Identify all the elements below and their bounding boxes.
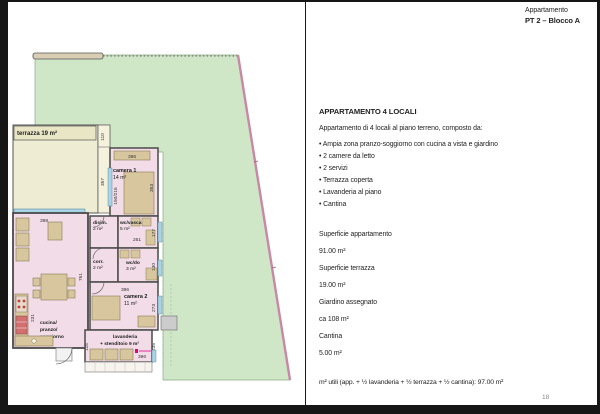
apartment-title: APPARTAMENTO 4 LOCALI bbox=[319, 107, 416, 116]
camera2-label: camera 2 bbox=[124, 294, 147, 300]
spec-item: Cantina 5.00 m² bbox=[319, 328, 392, 362]
stove-icon bbox=[16, 296, 27, 312]
spec-label: Superficie appartamento bbox=[319, 226, 392, 243]
lavanderia-window bbox=[152, 350, 156, 362]
document-header: Appartamento PT 2 – Blocco A bbox=[525, 6, 580, 26]
useful-area-footnote: m² utili (app. + ½ lavanderia + ½ terraz… bbox=[319, 379, 503, 386]
spec-label: Cantina bbox=[319, 328, 392, 345]
terrazza-label: terrazza 19 m² bbox=[17, 130, 57, 137]
dim-396-camera1: 396 bbox=[128, 154, 136, 160]
wcvasca-area: 5 m² bbox=[120, 226, 130, 232]
svg-text:pranzo/: pranzo/ bbox=[40, 327, 58, 333]
fridge-icon bbox=[16, 316, 27, 334]
sink-icon bbox=[32, 339, 36, 343]
exterior-unit-box bbox=[161, 316, 177, 330]
dim-273: 273 bbox=[151, 304, 157, 312]
dim-261: 261 bbox=[133, 237, 141, 243]
wcvasca-window bbox=[158, 222, 162, 242]
dim-110: 110 bbox=[100, 133, 106, 141]
spec-value: ca 108 m² bbox=[319, 311, 392, 328]
surface-specs: Superficie appartamento 91.00 m² Superfi… bbox=[319, 226, 392, 362]
spec-label: Giardino assegnato bbox=[319, 294, 392, 311]
spec-value: 19.00 m² bbox=[319, 277, 392, 294]
list-item: 2 servizi bbox=[319, 163, 498, 175]
list-item: Terrazza coperta bbox=[319, 175, 498, 187]
dim-231: 231 bbox=[30, 314, 36, 322]
camera1-window bbox=[108, 168, 112, 206]
apartment-intro: Appartamento di 4 locali al piano terren… bbox=[319, 125, 482, 132]
page-number: 18 bbox=[542, 394, 549, 401]
document-page: terrazza 19 m² 110 357 398 761 231 cucin… bbox=[8, 2, 597, 405]
washing-machines bbox=[90, 349, 133, 360]
list-item: Cantina bbox=[319, 199, 498, 211]
dim-177: 177 bbox=[151, 229, 157, 237]
disim-label: disim. bbox=[93, 220, 108, 226]
spec-label: Superficie terrazza bbox=[319, 260, 392, 277]
camera1-area: 14 m² bbox=[113, 175, 127, 181]
dim-357: 357 bbox=[100, 178, 106, 186]
spec-item: Giardino assegnato ca 108 m² bbox=[319, 294, 392, 328]
dim-130: 130 bbox=[151, 263, 157, 271]
feature-list: Ampia zona pranzo-soggiorno con cucina a… bbox=[319, 139, 498, 211]
page-root: { "header": { "label": "Appartamento", "… bbox=[0, 0, 600, 414]
header-label: Appartamento bbox=[525, 6, 580, 16]
spec-value: 91.00 m² bbox=[319, 243, 392, 260]
dim-115: 115 bbox=[84, 343, 90, 351]
dim-396-lavanderia: 396 bbox=[138, 354, 146, 360]
dim-396-camera2: 396 bbox=[121, 287, 129, 293]
list-item: Lavanderia al piano bbox=[319, 187, 498, 199]
list-item: 2 camere da letto bbox=[319, 151, 498, 163]
dim-398: 398 bbox=[40, 218, 48, 224]
top-wall bbox=[33, 53, 103, 59]
list-item: Ampia zona pranzo-soggiorno con cucina a… bbox=[319, 139, 498, 151]
room-corr bbox=[90, 248, 118, 282]
camera2-window bbox=[158, 296, 162, 314]
corr-label: corr. bbox=[93, 259, 104, 265]
unit-code: PT 2 – Blocco A bbox=[525, 16, 580, 26]
camera2-area: 11 m² bbox=[124, 301, 137, 307]
entry-step bbox=[56, 348, 72, 361]
dim-353: 353 bbox=[149, 184, 155, 192]
dim-235: 235 bbox=[151, 343, 157, 351]
spec-value: 5.00 m² bbox=[319, 345, 392, 362]
description-panel: Appartamento PT 2 – Blocco A APPARTAMENT… bbox=[306, 2, 597, 405]
spec-item: Superficie appartamento 91.00 m² bbox=[319, 226, 392, 260]
dim-761: 761 bbox=[78, 273, 84, 281]
wcdo-area: 3 m² bbox=[126, 266, 136, 272]
wcdo-label: wc/do bbox=[125, 260, 140, 266]
wcdo-window bbox=[158, 260, 162, 276]
lavanderia-label: lavanderia bbox=[113, 334, 137, 340]
dim-150-216: 150/216 bbox=[113, 187, 119, 205]
lavanderia-area: + stenditoio 9 m² bbox=[100, 341, 139, 347]
svg-text:cucina/: cucina/ bbox=[40, 320, 57, 326]
corr-area: 2 m² bbox=[93, 265, 103, 271]
spec-item: Superficie terrazza 19.00 m² bbox=[319, 260, 392, 294]
camera1-label: camera 1 bbox=[113, 168, 136, 174]
wcvasca-label: wc/vasca bbox=[119, 220, 142, 226]
floor-plan: terrazza 19 m² 110 357 398 761 231 cucin… bbox=[8, 2, 308, 405]
